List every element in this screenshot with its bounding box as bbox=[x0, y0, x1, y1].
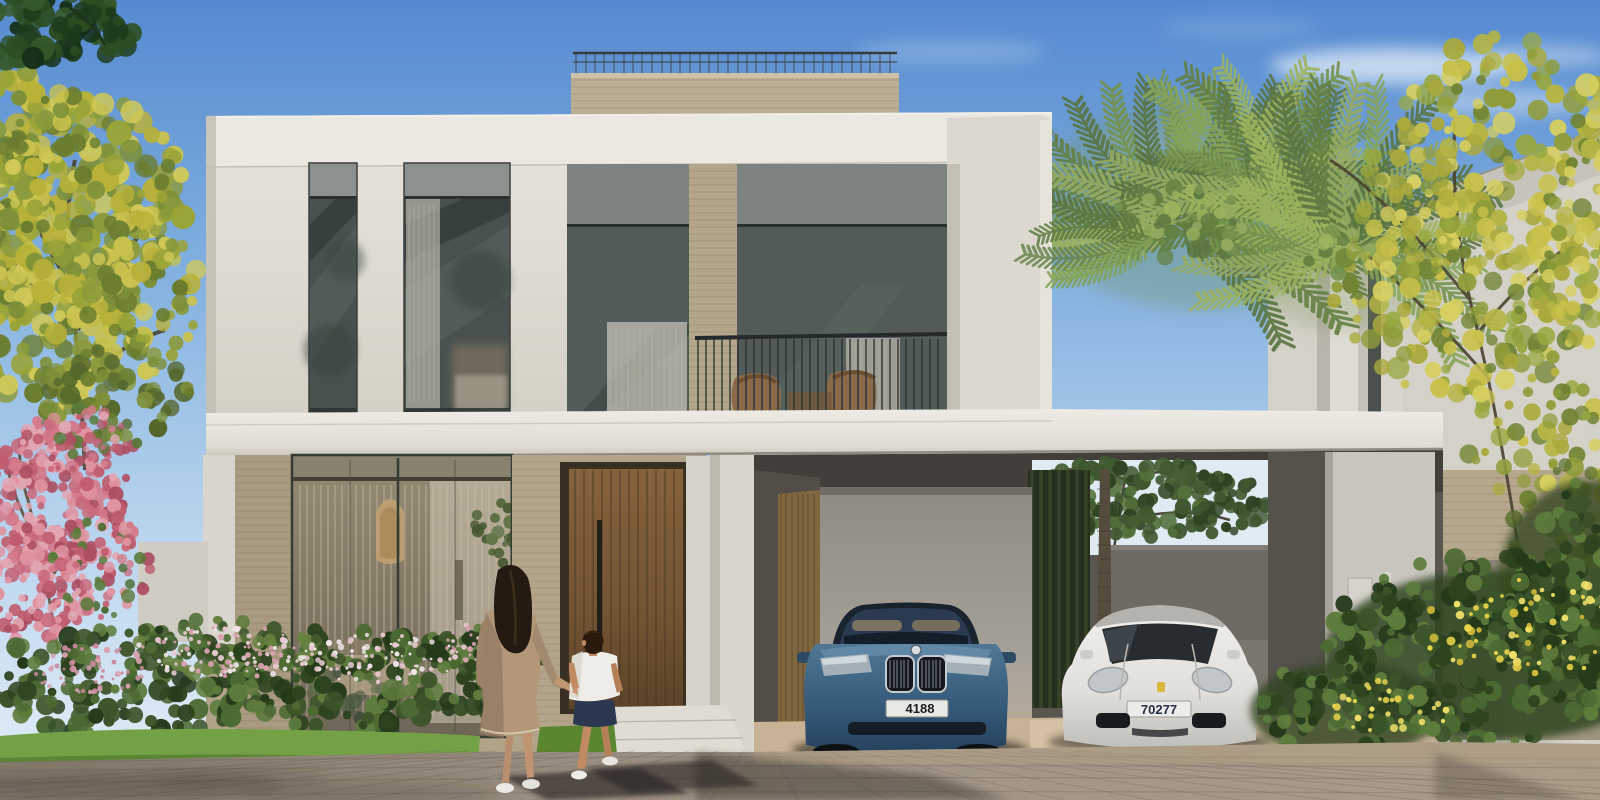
svg-text:70277: 70277 bbox=[1141, 702, 1177, 717]
svg-text:4188: 4188 bbox=[906, 701, 935, 716]
